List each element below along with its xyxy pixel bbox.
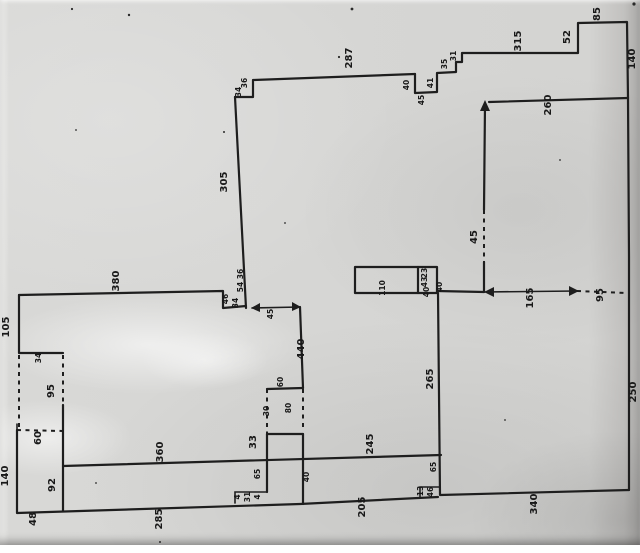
left-arrowhead	[251, 303, 260, 312]
dimension-label: 360	[155, 442, 166, 463]
dimension-arrows	[251, 100, 579, 312]
dimension-label: 34	[34, 353, 43, 363]
dimension-label: 33	[248, 435, 259, 449]
dimension-label: 260	[543, 95, 554, 116]
dimension-label: 45	[266, 309, 275, 319]
dimension-label: 250	[628, 382, 639, 403]
dimension-label: 60	[276, 377, 285, 387]
dimension-label: 48	[28, 512, 39, 526]
dimension-label: 60	[33, 431, 44, 445]
dimension-label: 92	[47, 478, 58, 492]
dimension-label: 36	[240, 78, 249, 88]
dimension-label: 95	[595, 288, 606, 302]
dimension-label: 30	[262, 406, 271, 416]
dimension-label: 95	[46, 384, 57, 398]
dimension-label: 34	[231, 298, 240, 308]
left-arrowhead	[484, 287, 494, 297]
dimension-label: 40	[302, 472, 311, 482]
dimension-label: 245	[365, 434, 376, 455]
dimension-label: 31	[449, 51, 458, 61]
dimension-label: 52	[562, 30, 573, 44]
dimension-label: 54	[236, 282, 245, 292]
dimension-label: 105	[1, 317, 12, 338]
dimension-label: 46	[221, 294, 230, 304]
dimension-label: 205	[357, 497, 368, 518]
dimension-label: 287	[344, 48, 355, 69]
right-arrowhead	[569, 286, 579, 296]
dimension-label: 140	[0, 466, 11, 487]
dimension-label: 35	[440, 59, 449, 69]
dimension-label: 31	[243, 492, 252, 502]
dimension-label: 45	[469, 230, 480, 244]
dimension-label: 80	[284, 403, 293, 413]
dimension-label: 40	[435, 282, 444, 292]
dimension-label: 34	[234, 87, 243, 97]
wall-lines	[17, 22, 629, 513]
dimension-label: 46	[426, 487, 435, 497]
dimension-label: 140	[627, 49, 638, 70]
floorplan-sketch-svg: 3053634287404541353131552851402604516595…	[0, 0, 640, 553]
dimension-label: 285	[154, 509, 165, 530]
scanned-floorplan-page: 3053634287404541353131552851402604516595…	[0, 0, 640, 553]
dimension-label: 43	[420, 277, 429, 287]
dimension-label: 110	[378, 280, 387, 296]
dimension-label: 4	[253, 494, 262, 499]
dimension-label: 13	[416, 486, 425, 496]
dimension-label: 315	[513, 31, 524, 52]
dimension-label: 165	[525, 288, 536, 309]
dimension-label: 440	[296, 339, 307, 360]
dimension-label: 41	[426, 78, 435, 88]
dimension-label: 40	[402, 80, 411, 90]
dimension-label: 265	[425, 369, 436, 390]
dimension-label: 4	[233, 494, 242, 499]
dimension-label: 65	[429, 462, 438, 472]
dashed-lines	[17, 210, 627, 434]
dimension-label: 36	[236, 269, 245, 279]
dimension-label: 23	[420, 268, 429, 278]
dimension-label: 340	[529, 494, 540, 515]
dimension-labels-layer: 3053634287404541353131552851402604516595…	[0, 7, 639, 529]
dimension-label: 45	[417, 95, 426, 105]
dimension-label: 65	[253, 469, 262, 479]
dimension-label: 40	[422, 287, 431, 297]
dimension-label: 305	[219, 172, 230, 193]
dimension-label: 380	[111, 271, 122, 292]
dimension-label: 85	[592, 7, 603, 21]
